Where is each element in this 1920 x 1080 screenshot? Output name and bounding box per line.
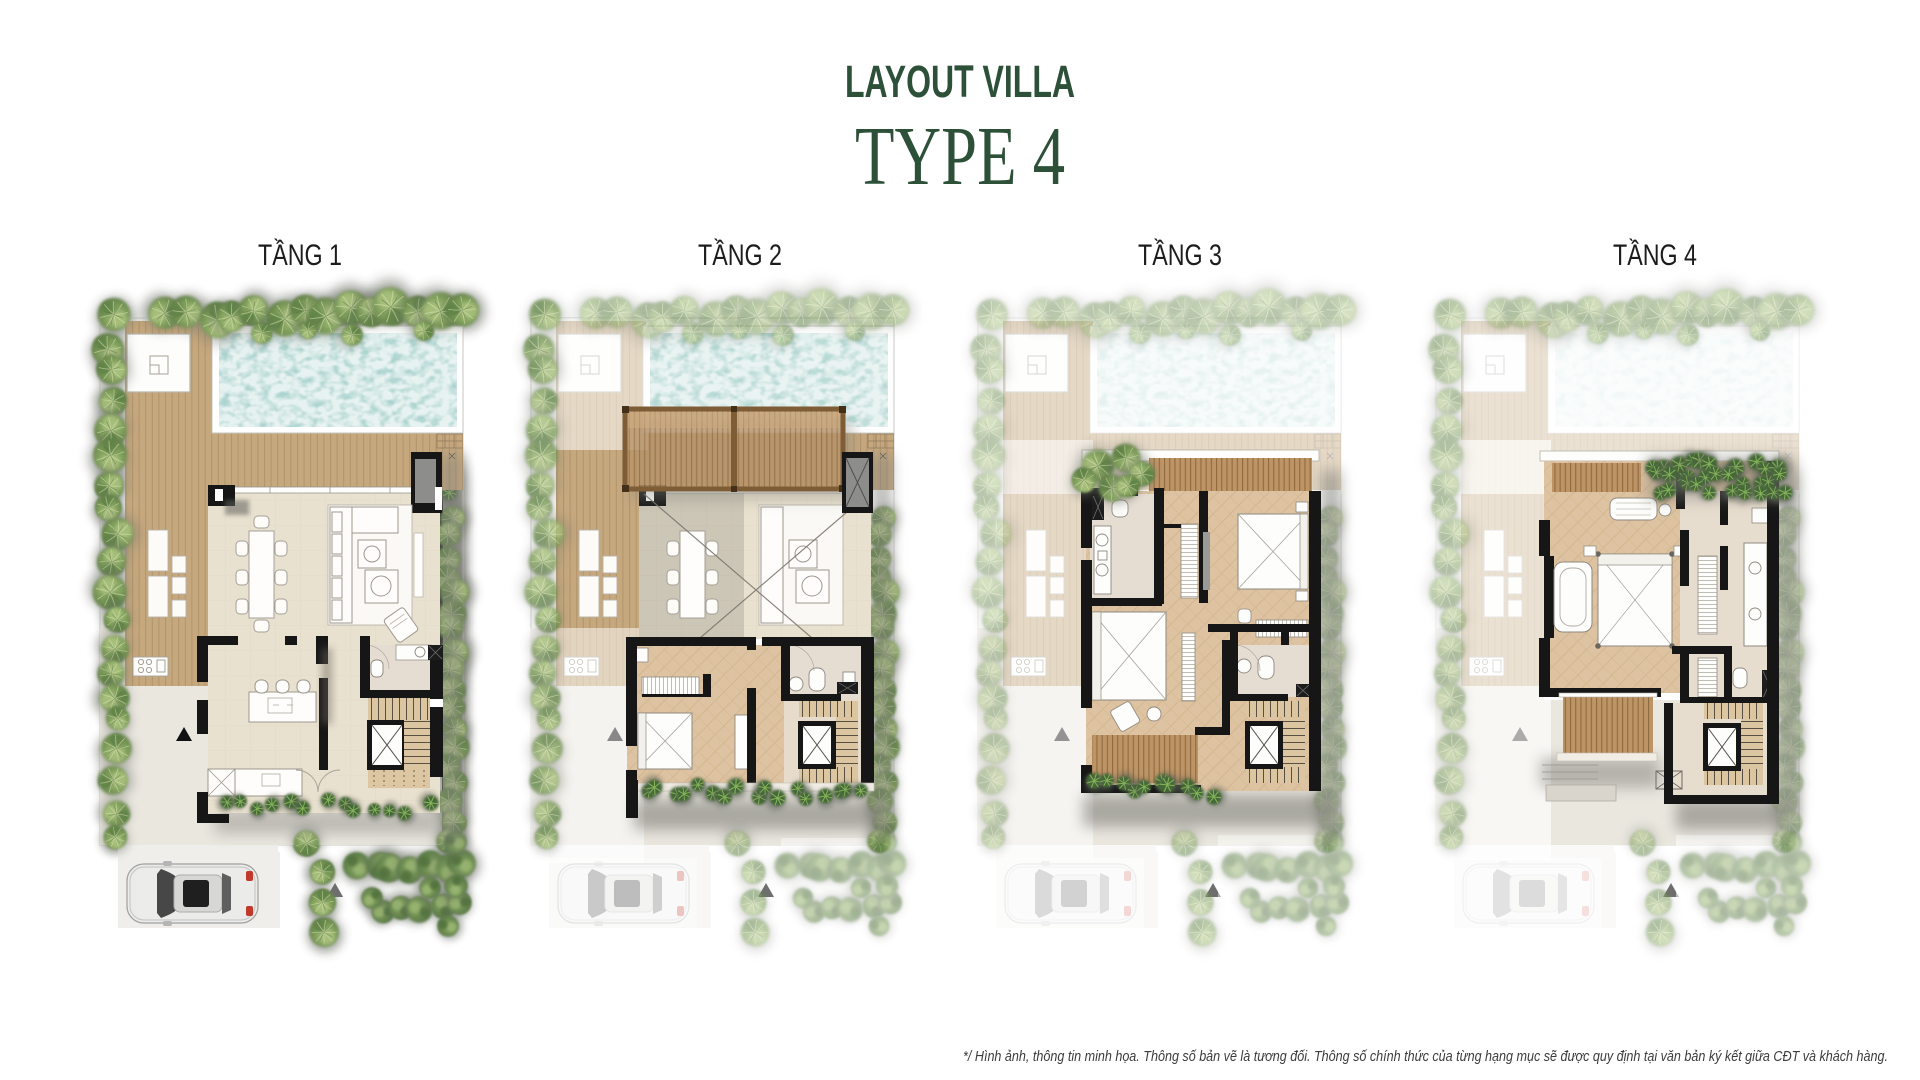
svg-text:TẦNG 3: TẦNG 3 — [1138, 238, 1222, 272]
svg-text:TẦNG 1: TẦNG 1 — [258, 238, 342, 272]
svg-text:*/ Hình ảnh, thông tin minh họ: */ Hình ảnh, thông tin minh họa. Thông s… — [963, 1048, 1888, 1065]
svg-text:LAYOUT VILLA: LAYOUT VILLA — [845, 56, 1075, 107]
svg-text:TYPE 4: TYPE 4 — [855, 110, 1065, 203]
svg-text:TẦNG 2: TẦNG 2 — [698, 238, 782, 272]
svg-text:TẦNG 4: TẦNG 4 — [1613, 238, 1697, 272]
